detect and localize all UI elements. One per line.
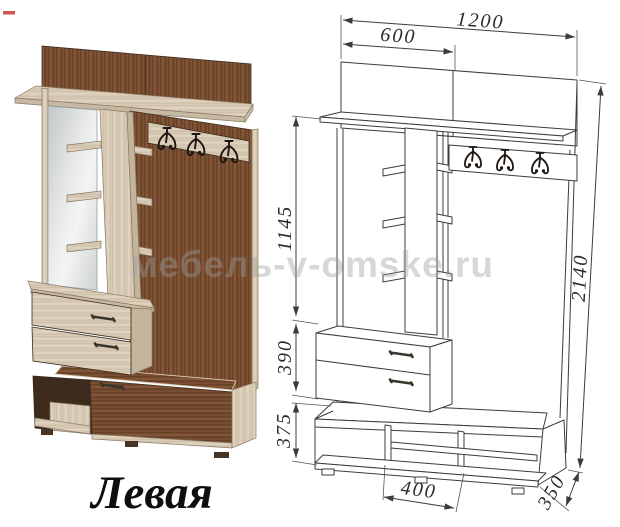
- bench-foot: [214, 452, 229, 458]
- td-small-shelf: [383, 217, 405, 228]
- dim-total-height: 2140: [568, 253, 592, 302]
- dim-left-section-width: 600: [380, 24, 417, 48]
- bench-door: [90, 380, 232, 443]
- mirror-frame-strip: [42, 88, 48, 296]
- dim-bench-height: 375: [273, 412, 295, 449]
- dim-drawer-unit-height: 390: [274, 339, 296, 376]
- td-foot: [512, 488, 524, 494]
- drawer-box-side: [131, 308, 152, 375]
- td-bench-divider: [385, 425, 391, 464]
- td-small-shelf: [437, 214, 452, 224]
- bench-side-face: [232, 382, 256, 448]
- diagram-canvas: Левая: [0, 0, 620, 527]
- bench-foot: [125, 441, 138, 447]
- td-foot: [322, 469, 334, 475]
- td-drawer-box-side: [430, 340, 452, 412]
- watermark-text: мебель-v-omske.ru: [130, 244, 494, 285]
- bench-foot: [41, 429, 53, 435]
- td-vertical-post: [405, 128, 437, 335]
- variant-label: Левая: [89, 467, 213, 519]
- dim-center-opening-width: 400: [400, 477, 438, 503]
- dim-total-width: 1200: [456, 8, 505, 33]
- red-corner-mark: [3, 11, 15, 15]
- hallway-furniture-diagram: Левая: [0, 0, 620, 527]
- td-small-shelf: [383, 165, 405, 176]
